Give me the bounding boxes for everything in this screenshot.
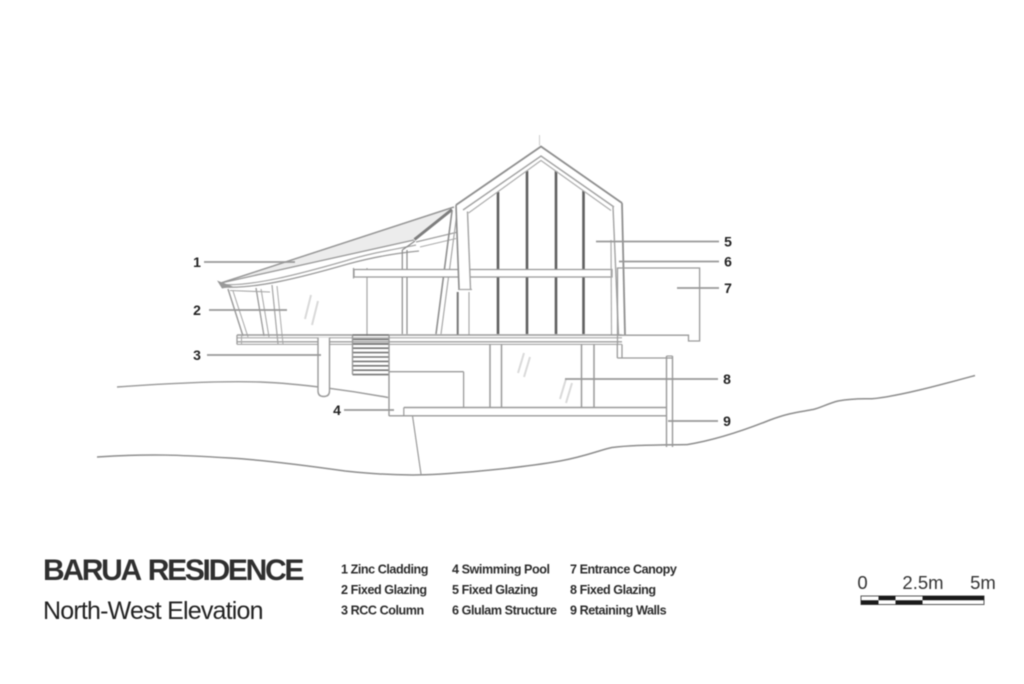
svg-text:5m: 5m [970,572,996,593]
svg-text:5: 5 [724,233,732,249]
svg-text:3: 3 [193,347,201,363]
svg-text:BARUA RESIDENCE: BARUA RESIDENCE [43,554,303,587]
svg-text:1: 1 [193,254,201,270]
svg-text:3 RCC Column: 3 RCC Column [341,604,424,618]
svg-text:7 Entrance Canopy: 7 Entrance Canopy [570,563,677,577]
svg-text:1 Zinc Cladding: 1 Zinc Cladding [341,563,428,577]
svg-text:6 Glulam Structure: 6 Glulam Structure [452,604,557,618]
svg-text:9: 9 [723,413,731,429]
svg-text:2: 2 [193,302,201,318]
svg-text:4 Swimming Pool: 4 Swimming Pool [452,563,550,577]
svg-text:5 Fixed Glazing: 5 Fixed Glazing [452,583,538,597]
svg-text:North-West Elevation: North-West Elevation [43,597,263,625]
svg-text:0: 0 [857,572,867,593]
svg-text:9 Retaining Walls: 9 Retaining Walls [570,604,667,618]
svg-text:7: 7 [724,280,732,296]
svg-text:8 Fixed Glazing: 8 Fixed Glazing [570,583,656,597]
svg-text:2.5m: 2.5m [902,572,943,593]
svg-text:6: 6 [724,253,732,269]
svg-text:2 Fixed Glazing: 2 Fixed Glazing [341,583,427,597]
svg-text:8: 8 [723,371,731,387]
svg-text:4: 4 [333,402,341,418]
